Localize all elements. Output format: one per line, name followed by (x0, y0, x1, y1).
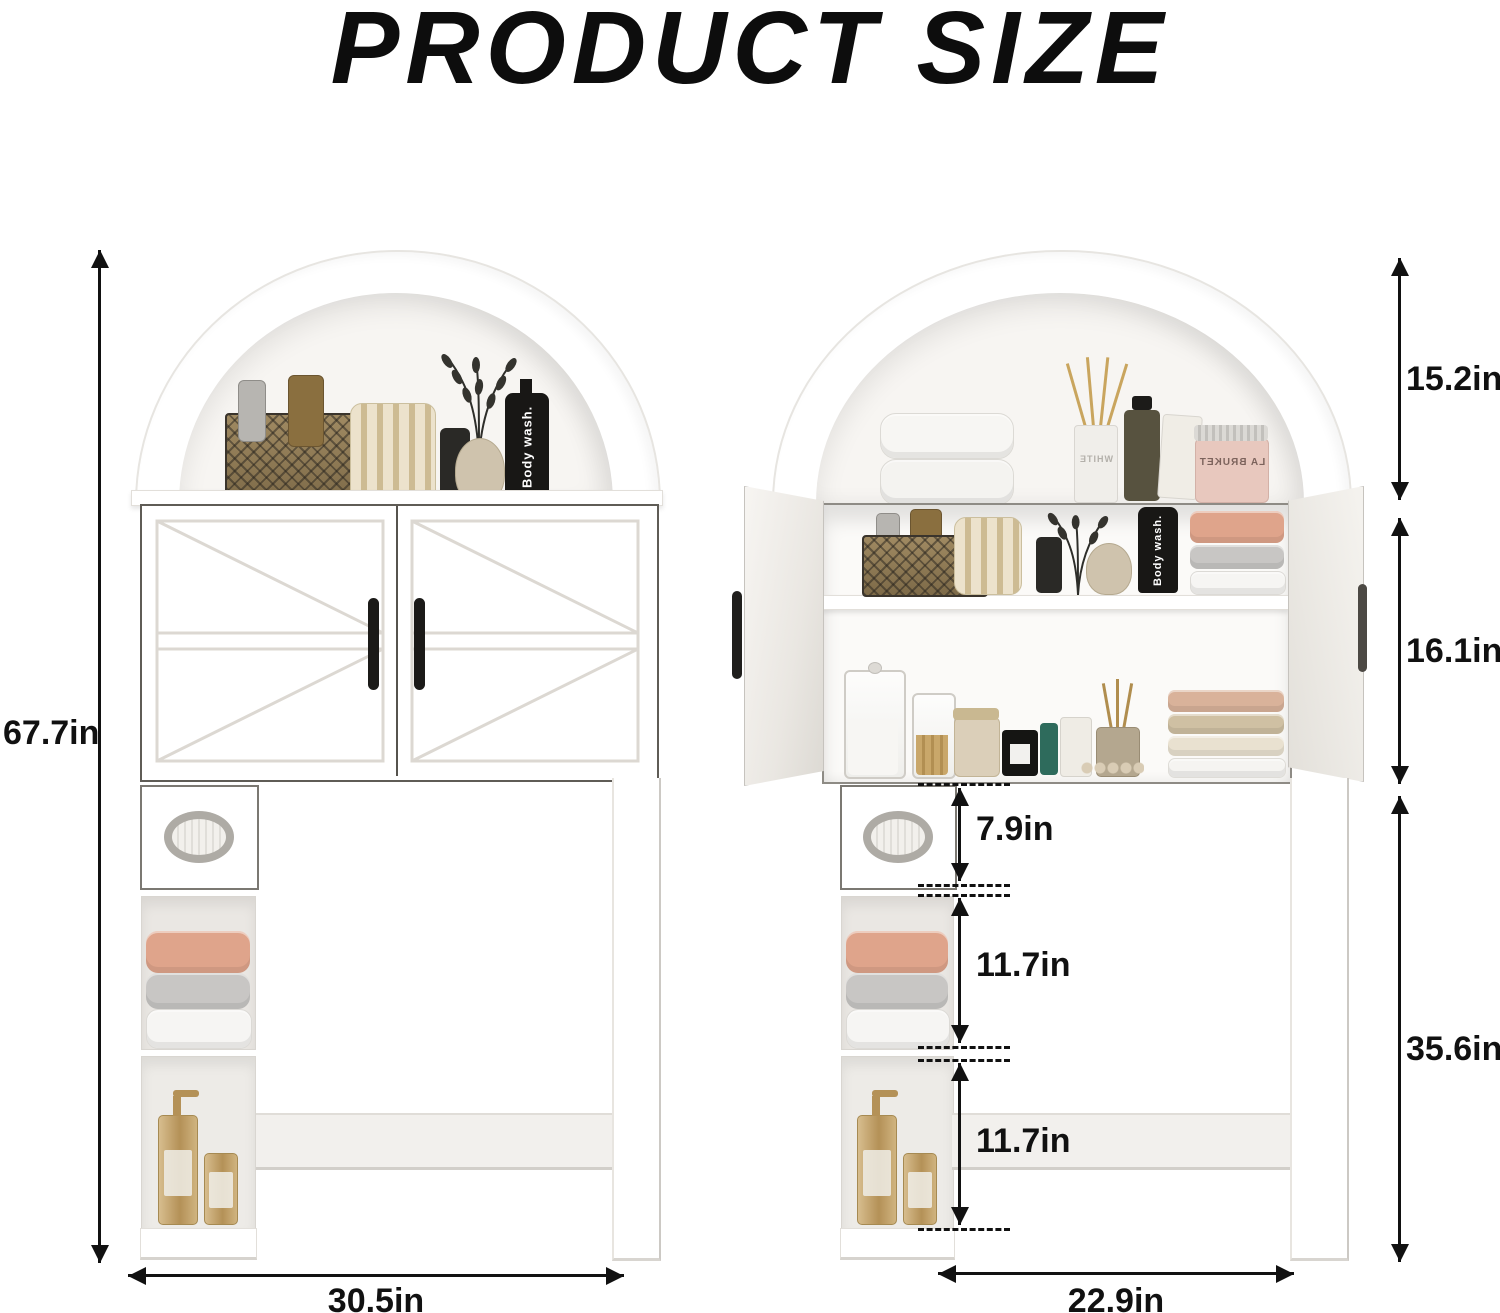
tissue-opening (863, 811, 933, 863)
tissue-height-dimension (958, 788, 961, 881)
peach-towel (1168, 690, 1284, 712)
arrow-right-icon (1276, 1265, 1294, 1283)
cotton-jar-lid (953, 708, 999, 720)
middle-cubby-bottom-guide (918, 1046, 1010, 1049)
amber-pump-bottle (288, 375, 324, 447)
open-right-door (1288, 486, 1364, 782)
jar-knob (868, 662, 882, 674)
rolled-towels (954, 517, 1022, 595)
white-towel (1190, 571, 1286, 595)
body-wash-bottle: Body wash. (505, 393, 549, 501)
bottom-cubby-dimension (958, 1063, 961, 1225)
open-width-label: 22.9in (1030, 1284, 1202, 1313)
left-door-handle (368, 598, 379, 690)
arch-height-dimension (1398, 258, 1401, 500)
peach-towel (846, 931, 948, 973)
front-tower-base (140, 1228, 257, 1260)
peach-towel (1190, 511, 1284, 543)
peach-towel (146, 931, 250, 973)
open-left-door-handle (732, 591, 742, 679)
bottle-pump (520, 379, 532, 393)
large-glass-jar (844, 670, 906, 779)
arrow-down-icon (1391, 766, 1409, 784)
arrow-down-icon (951, 1207, 969, 1225)
front-height-dimension (98, 250, 101, 1263)
pump-spout (173, 1090, 199, 1097)
gold-pump-dispenser (158, 1115, 198, 1225)
body-wash-label: Body wash. (1138, 507, 1178, 593)
front-height-label: 67.7in (3, 716, 99, 750)
white-towel (146, 1009, 252, 1049)
right-door-handle (414, 598, 425, 690)
spray-cap (1132, 396, 1152, 410)
bottom-cubby-top-guide (918, 1059, 1010, 1062)
arrow-down-icon (1391, 1244, 1409, 1262)
tissue-height-label: 7.9in (976, 812, 1053, 846)
black-perfume-bottle (1002, 730, 1038, 776)
dispenser-label (164, 1150, 192, 1196)
pink-jar: LA BRUKET (1195, 438, 1269, 503)
vase (1086, 543, 1132, 595)
body-wash-bottle: Body wash. (1138, 507, 1178, 593)
small-glass-jar (912, 693, 956, 779)
open-tower-base (840, 1228, 955, 1260)
perfume-label (1010, 744, 1030, 764)
front-middle-cubby (141, 896, 256, 1050)
cotton-jar (954, 717, 1000, 777)
bead-string (1080, 761, 1144, 775)
interior-shelf (822, 595, 1288, 610)
arrow-up-icon (1391, 258, 1409, 276)
front-door-cabinet (140, 504, 659, 782)
tissue-opening (164, 811, 234, 863)
page-title: PRODUCT SIZE (0, 0, 1500, 102)
front-width-label: 30.5in (290, 1284, 462, 1313)
open-right-leg (1290, 778, 1349, 1261)
front-right-leg (612, 778, 661, 1261)
front-width-dimension (128, 1274, 624, 1277)
front-tissue-box (140, 785, 259, 890)
gold-cup (204, 1153, 238, 1225)
white-towel (846, 1009, 950, 1049)
brush (1122, 683, 1133, 731)
middle-cubby-top-guide (918, 894, 1010, 897)
pump-stem (872, 1096, 880, 1116)
body-wash-label: Body wash. (505, 393, 549, 501)
tissue-bottom-guide (918, 884, 1010, 887)
clearance-height-label: 35.6in (1406, 1032, 1500, 1066)
product-size-diagram: PRODUCT SIZE (0, 0, 1500, 1313)
open-bottom-cubby (841, 1056, 954, 1230)
reed-diffuser-bottle: WHITE (1074, 425, 1118, 503)
pump-spout (872, 1090, 898, 1097)
arrow-left-icon (938, 1265, 956, 1283)
middle-cubby-label: 11.7in (976, 948, 1071, 982)
gray-towel (1190, 545, 1284, 569)
white-folded-towel (880, 459, 1014, 503)
tan-towel (1168, 714, 1284, 734)
open-cabinet-interior: Body wash. (822, 503, 1292, 784)
gray-towel (146, 973, 250, 1009)
arrow-right-icon (606, 1267, 624, 1285)
gold-cup (903, 1153, 937, 1225)
arrow-up-icon (951, 788, 969, 806)
gray-towel (846, 973, 948, 1009)
pump-stem (173, 1096, 181, 1116)
teal-bottle (1040, 723, 1058, 775)
jar-lid (1194, 425, 1268, 441)
arrow-up-icon (1391, 518, 1409, 536)
diffuser-brand-label: WHITE (1075, 454, 1117, 464)
diffuser-stick (1066, 363, 1087, 427)
dark-bottle (1036, 537, 1062, 593)
arch-height-label: 15.2in (1406, 362, 1500, 396)
cabinet-height-label: 16.1in (1406, 634, 1500, 668)
open-right-door-handle (1358, 584, 1367, 672)
open-tissue-box (840, 785, 957, 890)
white-towel (1168, 758, 1286, 778)
arrow-up-icon (1391, 796, 1409, 814)
front-bottom-cubby (141, 1056, 256, 1230)
tissue-top-guide (918, 783, 1010, 786)
arrow-down-icon (951, 863, 969, 881)
left-barn-door (142, 506, 398, 776)
tissue-paper (871, 819, 925, 855)
white-folded-towel (880, 413, 1014, 459)
diffuser-stick (1099, 357, 1109, 427)
arrow-left-icon (128, 1267, 146, 1285)
arrow-down-icon (1391, 482, 1409, 500)
open-width-dimension (938, 1272, 1294, 1275)
arrow-up-icon (951, 1063, 969, 1081)
right-barn-door (398, 506, 653, 776)
bottom-cubby-label: 11.7in (976, 1124, 1071, 1158)
dispenser-label (863, 1150, 891, 1196)
cabinet-height-dimension (1398, 518, 1401, 784)
dropper-bottle (238, 380, 266, 442)
diffuser-stick (1086, 357, 1095, 427)
cream-towel (1168, 736, 1284, 756)
spray-bottle (1124, 410, 1160, 501)
bottom-cubby-bottom-guide (918, 1228, 1010, 1231)
gold-pump-dispenser (857, 1115, 897, 1225)
jar-contents (848, 720, 898, 775)
open-left-door (744, 486, 824, 786)
cup-label (209, 1172, 233, 1208)
front-support-bar (256, 1113, 612, 1170)
jar-sticks (916, 735, 948, 775)
arrow-up-icon (951, 898, 969, 916)
arrow-up-icon (91, 250, 109, 268)
jar-brand-label: LA BRUKET (1196, 457, 1268, 468)
brush (1102, 683, 1113, 731)
brush (1116, 679, 1119, 731)
clearance-height-dimension (1398, 796, 1401, 1262)
arrow-down-icon (91, 1245, 109, 1263)
arrow-down-icon (951, 1025, 969, 1043)
tissue-paper (172, 819, 226, 855)
cup-label (908, 1172, 932, 1208)
middle-cubby-dimension (958, 898, 961, 1043)
open-middle-cubby (841, 896, 954, 1050)
